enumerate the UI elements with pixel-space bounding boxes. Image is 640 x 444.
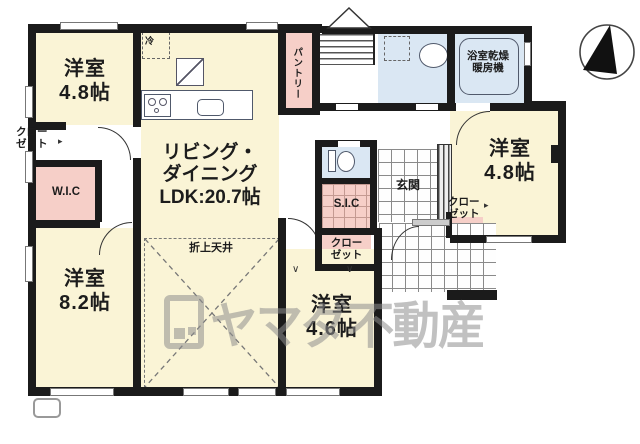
refrigerator-label: 冷 [145,36,154,47]
wall [36,160,100,167]
closet-label-line: ゼット [448,208,480,220]
wall [370,140,377,235]
wash-basin [419,43,448,68]
window [238,388,276,396]
ldk-label-line: LDK:20.7帖 [159,187,260,208]
bath-label-line: 暖房機 [472,62,504,74]
door-opening [416,104,438,110]
closet-pointer-icon: ▸ [484,200,489,211]
window [25,151,33,183]
closet-label-line: ゼット [16,138,48,150]
kitchen-cupboard [176,58,204,86]
room-name-text: 洋室 [489,138,531,160]
window [50,388,114,396]
bathroom-heater-label: 浴室乾燥 暖房機 [456,50,520,74]
door-arc-bedroom-bottom-left [99,222,132,255]
burner-icon [148,98,156,106]
window [183,388,229,396]
washing-machine-pan [384,36,410,61]
door-opening [336,104,358,110]
entrance-hall-label: 玄関 [384,178,432,192]
closet-pointer-icon: ▸ [58,136,63,147]
wall [28,220,100,228]
window [286,388,340,396]
wall [133,158,141,396]
wall [28,24,36,396]
north-arrow-icon [576,20,640,84]
burner-icon [154,108,159,113]
stairs-up-chevron-icon [324,4,374,30]
wall [315,228,377,235]
bedroom-top-left-label: 洋室 4.8帖 [42,58,128,105]
room-name-text: 洋室 [64,268,106,290]
door-arc-bedroom-top-left [98,127,131,160]
walk-in-closet-label: W.I.C [38,186,94,200]
wall [278,24,286,115]
wall-vent [551,145,560,163]
toilet-tank [328,150,336,172]
toilet-bowl [337,151,355,172]
closet-label-line: ゼット [331,249,363,261]
wall [558,101,566,243]
window [60,22,118,30]
room-size-text: 8.2帖 [59,292,111,314]
closet-bottom-middle-label: クロー ゼット [324,237,369,261]
watermark-text: ヤマダ不動産 [210,286,484,358]
wall [447,26,455,103]
coffered-ceiling-label: 折上天井 [180,242,242,255]
ldk-label: リビング・ ダイニング LDK:20.7帖 [142,142,278,209]
window [25,246,33,282]
ldk-label-line: ダイニング [162,164,257,185]
wall [95,160,102,222]
window [246,22,278,30]
room-size-text: 4.8帖 [484,162,536,184]
door-opening [456,103,490,111]
outdoor-unit [33,398,61,418]
window [25,86,33,118]
bedroom-top-right-label: 洋室 4.8帖 [468,138,552,185]
wall [317,178,372,184]
hanger-mark: ∨ [292,264,299,276]
bedroom-bottom-left-label: 洋室 8.2帖 [40,268,130,315]
shoes-in-closet-label: S.I.C [324,198,369,212]
front-door-leaf [412,219,450,226]
kitchen-sink [197,99,224,116]
wall [315,140,322,270]
floor-plan: 洋室 4.8帖 クロー ゼット ▸ W.I.C 洋室 8.2帖 リビング・ ダイ… [0,0,640,444]
window [486,236,532,243]
closet-label-line: クロー [448,196,480,208]
burner-icon [159,98,167,106]
closet-label-line: クロー [331,237,363,249]
hanger-mark: ∨ [346,264,353,276]
pantry-label: パントリー [291,38,302,108]
bath-label-line: 浴室乾燥 [467,50,509,62]
door-opening [338,141,360,147]
room-name-text: 洋室 [64,58,106,80]
closet-label-line: クロー [16,126,48,138]
watermark: ヤマダ不動産 [164,286,498,358]
wall [524,26,532,109]
closet-left-label: クロー ゼット [16,126,64,150]
room-size-text: 4.8帖 [59,82,111,104]
window [524,42,531,66]
wall [133,24,141,127]
ldk-label-line: リビング・ [162,142,257,163]
wall [312,24,320,115]
stove [144,94,171,117]
watermark-logo-icon [164,295,204,349]
